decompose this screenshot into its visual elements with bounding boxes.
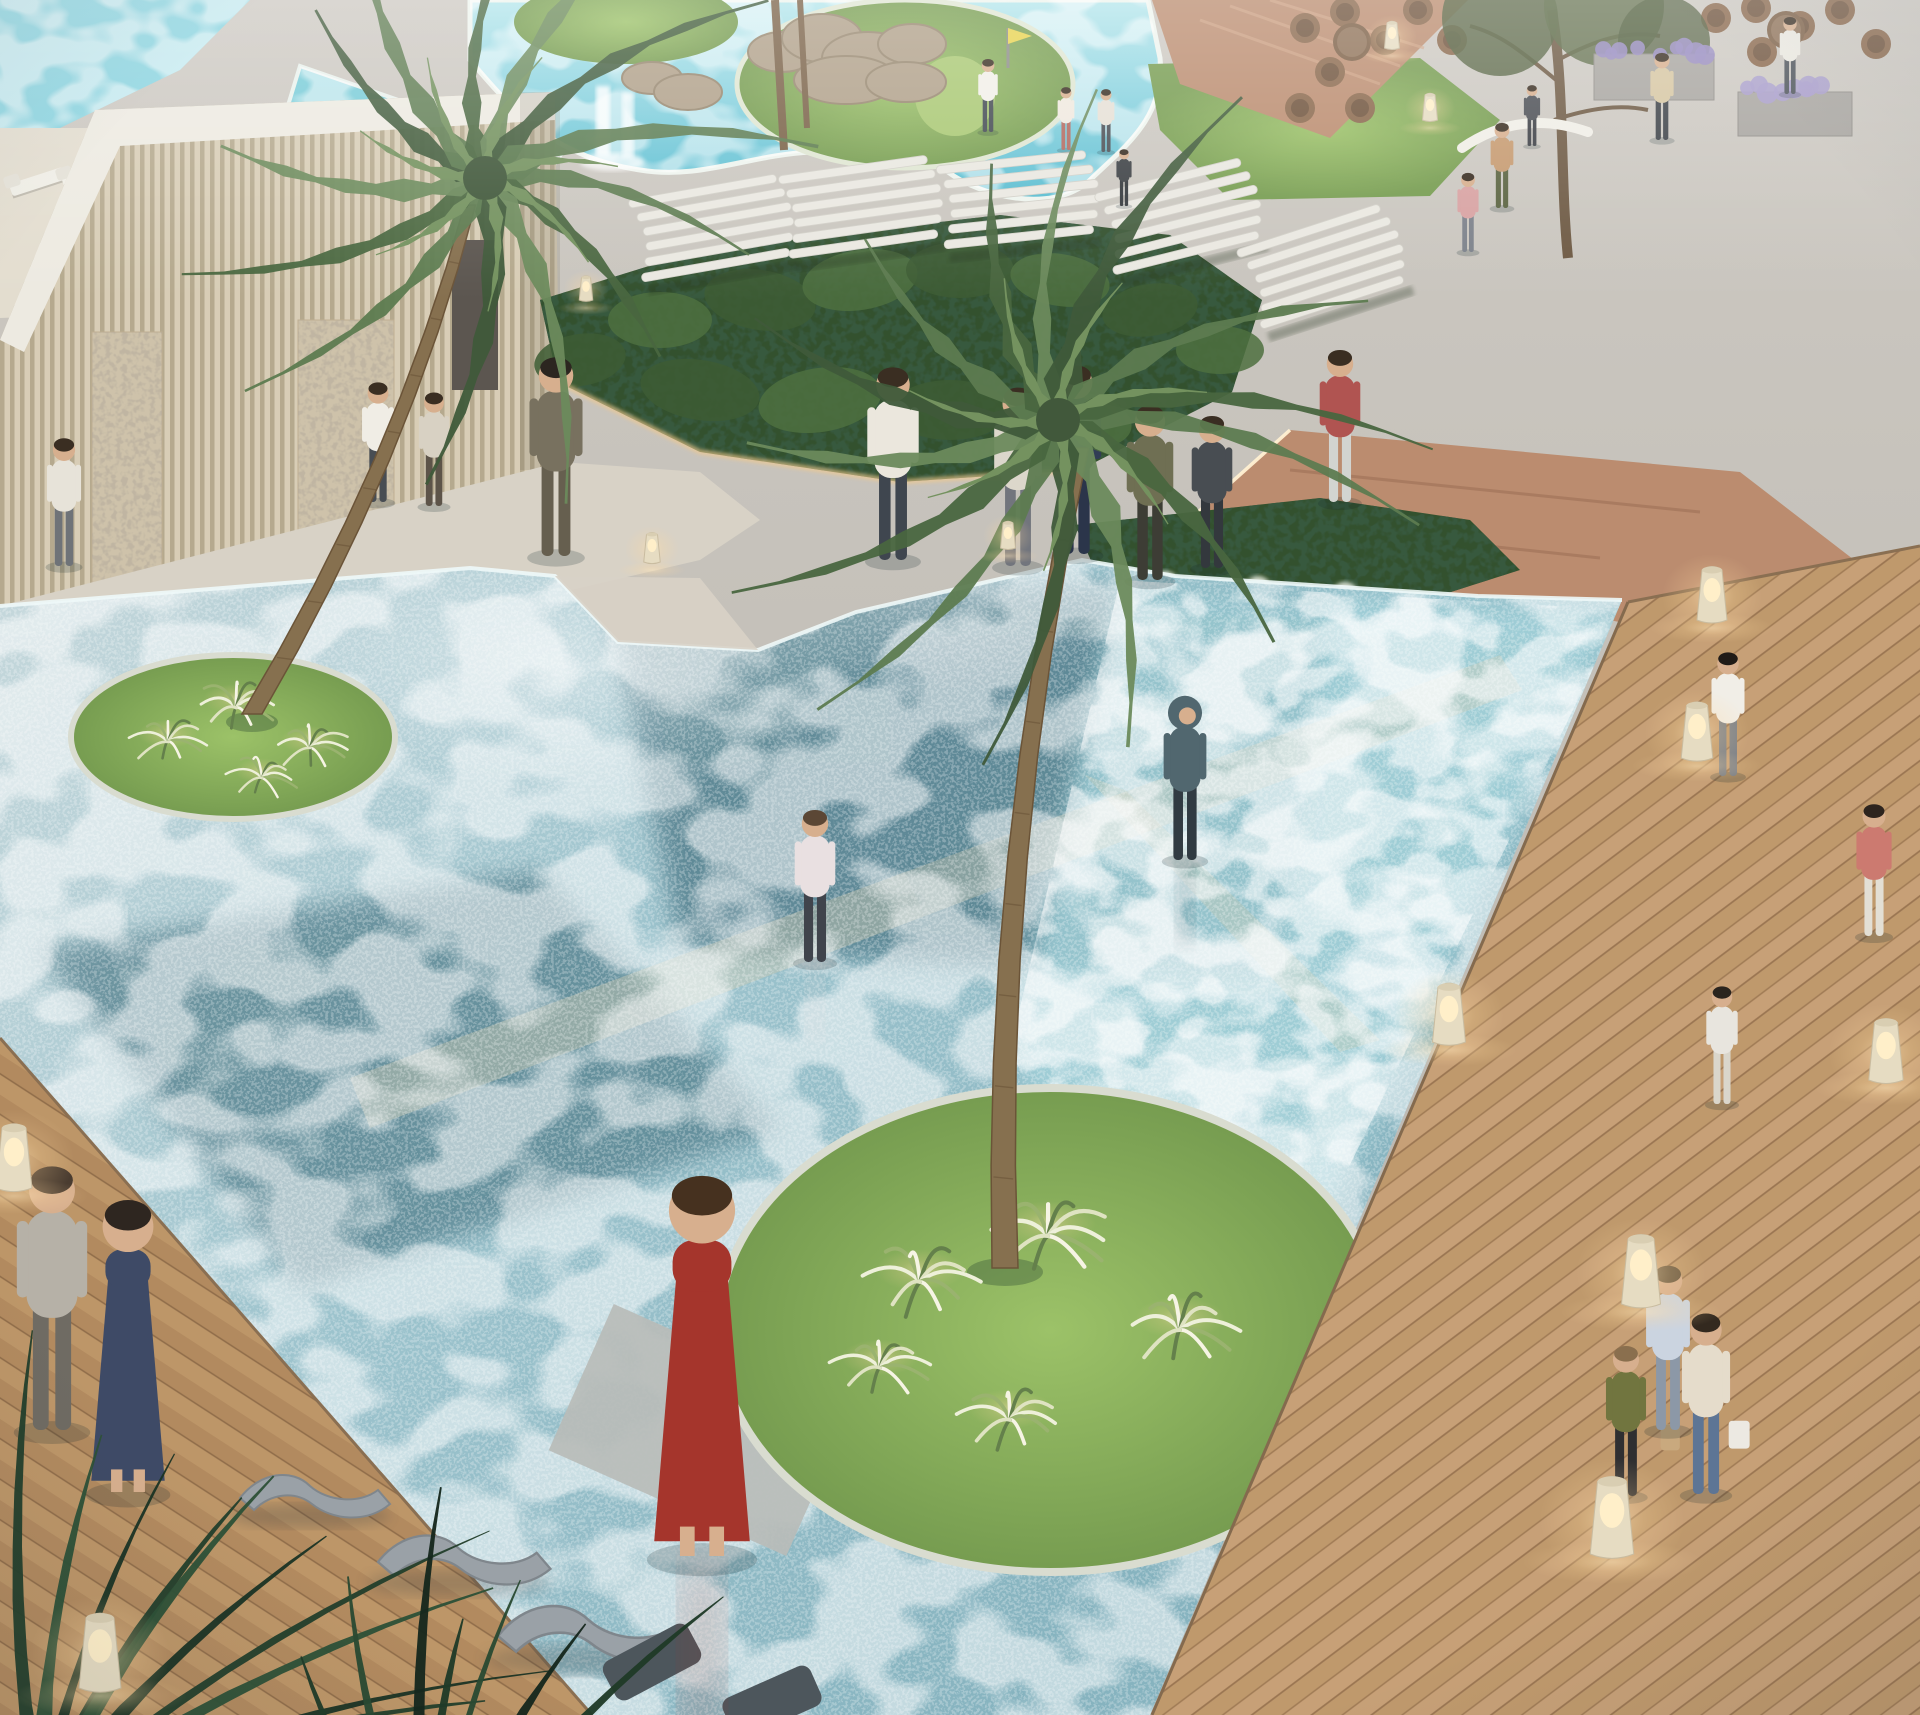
vignette bbox=[0, 0, 1920, 1715]
scene-canvas bbox=[0, 0, 1920, 1715]
resort-rendering: Dusk aerial architectural rendering of a… bbox=[0, 0, 1920, 1715]
